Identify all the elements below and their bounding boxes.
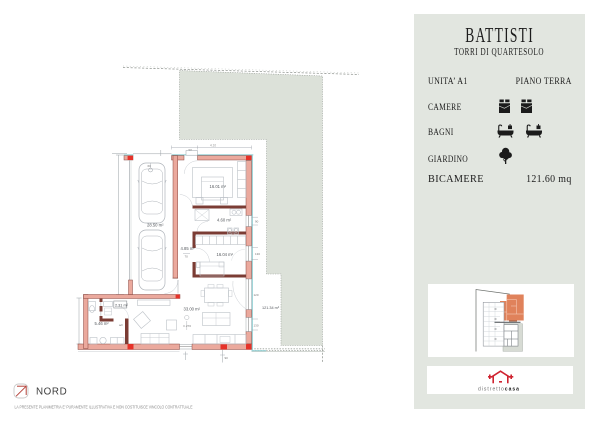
svg-text:4.10: 4.10: [210, 144, 216, 148]
svg-text:5.46 m²: 5.46 m²: [95, 321, 110, 326]
svg-text:60: 60: [148, 164, 152, 168]
svg-text:90: 90: [255, 220, 259, 224]
svg-text:70: 70: [185, 255, 189, 259]
svg-text:33.00 m²: 33.00 m²: [184, 307, 201, 312]
svg-text:LA PRESENTE PLANIMETRIA E' PUR: LA PRESENTE PLANIMETRIA E' PURAMENTE ILL…: [15, 405, 193, 410]
svg-text:90: 90: [225, 356, 229, 360]
svg-text:130: 130: [255, 252, 260, 256]
svg-text:a/c: a/c: [119, 323, 124, 327]
svg-text:distrettocasa: distrettocasa: [478, 387, 520, 393]
svg-text:130: 130: [254, 324, 259, 328]
svg-text:h.270: h.270: [184, 324, 192, 328]
svg-text:121.34 m²: 121.34 m²: [262, 306, 280, 310]
svg-text:120: 120: [254, 293, 259, 297]
svg-text:4.60 m²: 4.60 m²: [217, 218, 232, 223]
svg-text:16.04 m²: 16.04 m²: [217, 252, 234, 257]
svg-text:2.31 m²: 2.31 m²: [115, 303, 129, 307]
svg-text:NORD: NORD: [36, 387, 67, 398]
svg-text:16.01 m²: 16.01 m²: [210, 184, 227, 189]
svg-text:4.85 m²: 4.85 m²: [181, 246, 196, 251]
